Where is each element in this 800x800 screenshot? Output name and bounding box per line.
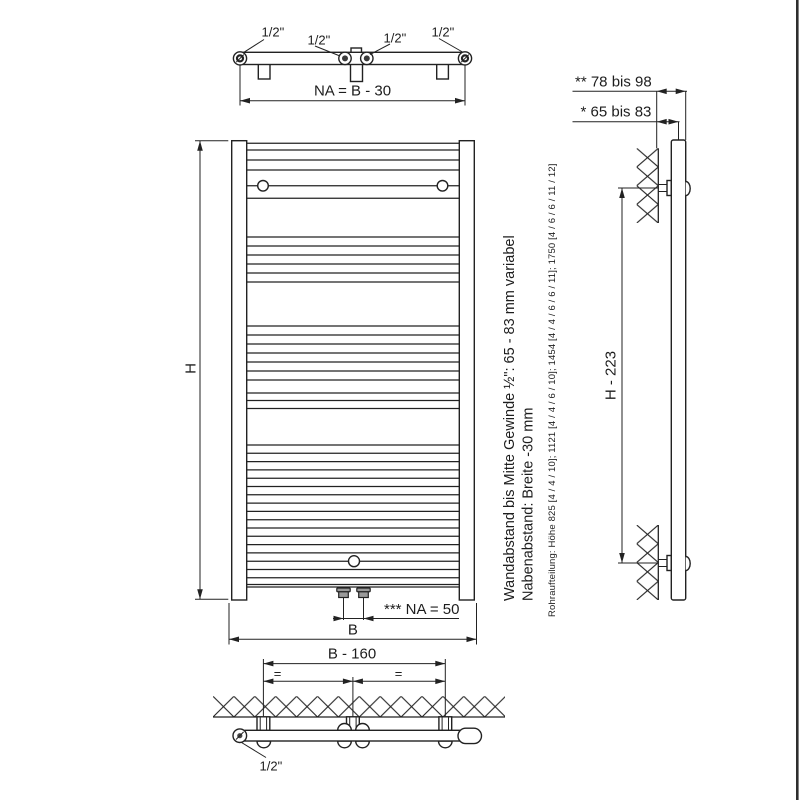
top-view-left-leg: [258, 63, 270, 79]
bottom-view: B - 160 = =: [213, 646, 505, 774]
side-bracket-top: [658, 181, 671, 196]
bottom-thread-label: 1/2": [260, 759, 283, 774]
note-hub-distance: Nabenabstand: Breite -30 mm: [521, 408, 537, 601]
side-wall-hatch-top: [637, 148, 659, 223]
wall-to-front-label: ** 78 bis 98: [575, 74, 652, 91]
height-dimension: H: [183, 141, 229, 600]
side-view: ** 78 bis 98 * 65 bis 83 H - 223: [573, 74, 691, 601]
note-wall-distance: Wandabstand bis Mitte Gewinde ½": 65 - 8…: [502, 235, 518, 601]
bracket-hole-left-icon: [258, 181, 269, 192]
bracket-span-dimension: H - 223: [603, 188, 659, 563]
wall-to-axis-label: * 65 bis 83: [581, 104, 652, 121]
thread-label-1: 1/2": [262, 25, 285, 40]
side-bracket-bottom: [658, 556, 671, 571]
thread-fitting-right-icon: [458, 52, 471, 65]
wall-hatch: [213, 696, 505, 717]
side-collar-top: [686, 182, 691, 196]
bracket-span-label: H - 223: [603, 351, 620, 400]
radiator-rungs: [247, 143, 460, 587]
radiator-technical-drawing: 1/2" 1/2" 1/2" 1/2" NA = B - 30: [0, 0, 800, 800]
right-tube: [459, 141, 474, 600]
wall-brackets: [257, 717, 452, 731]
hub-spacing-label: NA = B - 30: [314, 83, 391, 100]
side-collar-bottom: [686, 557, 691, 571]
bottom-span-label: B - 160: [328, 646, 376, 663]
top-view: 1/2" 1/2" 1/2" 1/2" NA = B - 30: [233, 25, 471, 106]
bracket-hole-right-icon: [437, 181, 448, 192]
bottom-collector-bar: [245, 730, 461, 741]
thread-fitting-bottom-icon: [233, 729, 247, 743]
equal-mark-left: =: [274, 666, 282, 681]
wall-to-axis-dimension: * 65 bis 83: [573, 104, 680, 141]
valve-connection-left-icon: [337, 588, 350, 598]
width-label: B: [348, 622, 358, 639]
note-pipe-layout: Rohraufteilung: Höhe 825 [4 / 4 / 10]; 1…: [547, 164, 558, 618]
valve-connection-right-icon: [357, 588, 370, 598]
top-view-center-leg: [351, 63, 363, 82]
side-tube-profile: [671, 140, 685, 600]
thread-fitting-left-icon: [233, 52, 246, 65]
top-view-collector-bar: [243, 52, 463, 64]
drawing-canvas: 1/2" 1/2" 1/2" 1/2" NA = B - 30: [0, 0, 800, 800]
end-cap: [458, 728, 482, 743]
thread-label-2: 1/2": [308, 33, 331, 48]
valve-spacing-label: *** NA = 50: [384, 601, 459, 618]
equal-mark-right: =: [395, 666, 403, 681]
air-vent-icon: [349, 556, 360, 567]
thread-label-3: 1/2": [384, 31, 407, 46]
thread-label-4: 1/2": [432, 25, 455, 40]
left-tube: [232, 141, 247, 600]
hub-fitting-left-icon: [339, 52, 351, 64]
valve-spacing-dimension: *** NA = 50: [333, 598, 459, 622]
annotations: Wandabstand bis Mitte Gewinde ½": 65 - 8…: [502, 164, 558, 618]
top-view-right-leg: [437, 63, 449, 79]
height-label: H: [183, 363, 200, 374]
front-view: H *** NA = 50 B: [183, 141, 477, 645]
